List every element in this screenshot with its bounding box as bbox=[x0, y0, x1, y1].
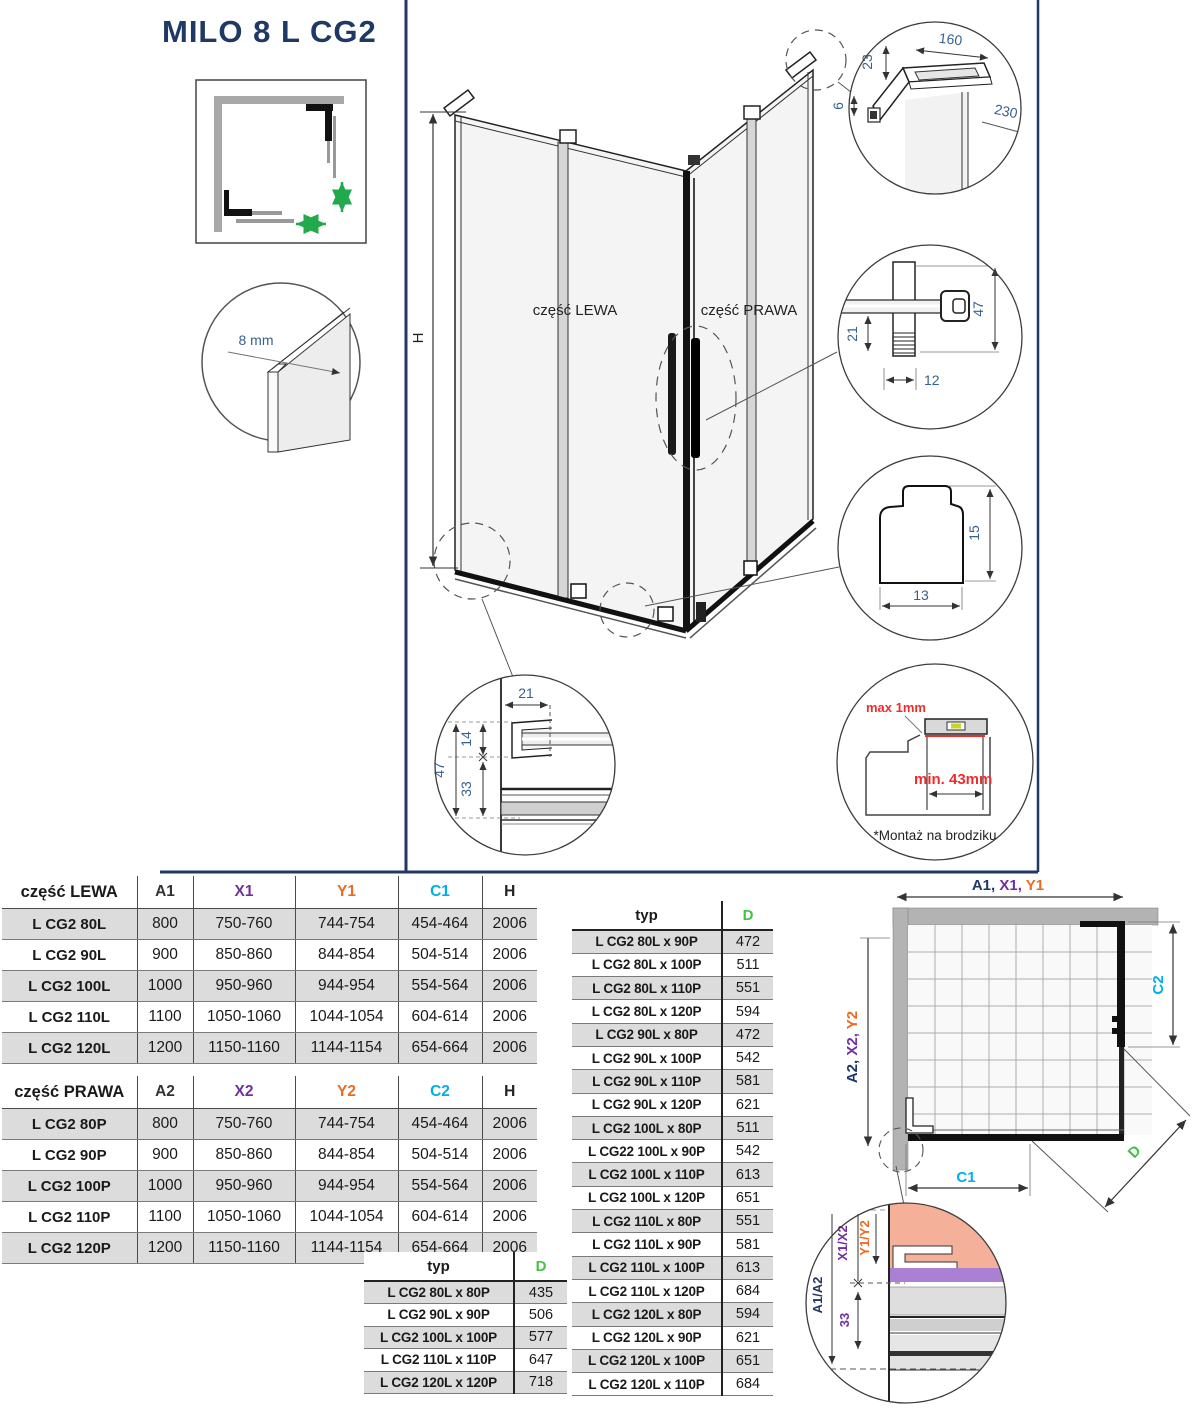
row-value: 750-760 bbox=[193, 1109, 295, 1140]
row-label: L CG2 120L x 110P bbox=[572, 1373, 722, 1396]
row-value: 621 bbox=[722, 1326, 773, 1349]
row-value: 1100 bbox=[137, 1202, 193, 1233]
table-typ-large: typ D L CG2 80L x 90P472L CG2 80L x 100P… bbox=[572, 901, 773, 1396]
table-row: L CG2 120L12001150-11601144-1154654-6642… bbox=[2, 1033, 537, 1064]
table-row: L CG2 110L x 110P647 bbox=[364, 1349, 567, 1372]
plan-c2-label: C2 bbox=[1150, 975, 1167, 994]
row-label: L CG2 100L x 80P bbox=[572, 1116, 722, 1139]
row-value: 1044-1054 bbox=[295, 1202, 398, 1233]
row-value: 684 bbox=[722, 1373, 773, 1396]
row-value: 604-614 bbox=[398, 1002, 482, 1033]
row-value: 1200 bbox=[137, 1033, 193, 1064]
dim-47b: 47 bbox=[431, 762, 447, 778]
col-h: H bbox=[482, 876, 537, 909]
row-label: L CG2 80L x 80P bbox=[364, 1281, 514, 1304]
row-value: 542 bbox=[722, 1140, 773, 1163]
row-value: 604-614 bbox=[398, 1202, 482, 1233]
detail-top-bracket: 23 160 6 230 bbox=[830, 22, 1034, 194]
row-label: L CG2 120P bbox=[2, 1233, 137, 1264]
corner-y-label: Y1/Y2 bbox=[857, 1220, 872, 1255]
row-label: L CG2 100L x 110P bbox=[572, 1163, 722, 1186]
row-label: L CG2 120L x 80P bbox=[572, 1303, 722, 1326]
row-value: 684 bbox=[722, 1279, 773, 1302]
table-row: L CG2 80L x 80P435 bbox=[364, 1281, 567, 1304]
table-row: L CG2 80L800750-760744-754454-4642006 bbox=[2, 909, 537, 940]
row-value: 511 bbox=[722, 953, 773, 976]
row-value: 651 bbox=[722, 1349, 773, 1372]
plan-c1-label: C1 bbox=[956, 1169, 975, 1186]
row-value: 900 bbox=[137, 940, 193, 971]
row-label: L CG2 80L bbox=[2, 909, 137, 940]
row-label: L CG2 90L x 90P bbox=[364, 1304, 514, 1327]
row-label: L CG2 110L x 110P bbox=[364, 1349, 514, 1372]
plan-top-dim-label: A1, X1, Y1 bbox=[972, 877, 1044, 894]
dim-13: 13 bbox=[913, 587, 929, 603]
row-value: 621 bbox=[722, 1093, 773, 1116]
table-row: L CG2 80L x 100P511 bbox=[572, 953, 773, 976]
table-title: część LEWA bbox=[2, 876, 137, 909]
row-value: 554-564 bbox=[398, 971, 482, 1002]
row-value: 472 bbox=[722, 1023, 773, 1046]
table-row: L CG2 120L x 90P621 bbox=[572, 1326, 773, 1349]
row-label: L CG2 90L x 110P bbox=[572, 1070, 722, 1093]
row-label: L CG2 110P bbox=[2, 1202, 137, 1233]
table-row: L CG2 110L x 90P581 bbox=[572, 1233, 773, 1256]
main-isometric-drawing: H część LEWA część PRAWA bbox=[410, 30, 856, 677]
col-d: D bbox=[722, 901, 773, 930]
table-row: L CG2 90L x 120P621 bbox=[572, 1093, 773, 1116]
row-value: 950-960 bbox=[193, 1171, 295, 1202]
col-a1: A1 bbox=[137, 876, 193, 909]
row-value: 850-860 bbox=[193, 940, 295, 971]
row-value: 613 bbox=[722, 1256, 773, 1279]
plan-d-label: D bbox=[1125, 1142, 1145, 1162]
row-value: 1050-1060 bbox=[193, 1202, 295, 1233]
row-label: L CG2 90L x 120P bbox=[572, 1093, 722, 1116]
row-value: 654-664 bbox=[398, 1033, 482, 1064]
col-c1: C1 bbox=[398, 876, 482, 909]
table-row: L CG2 120L x 110P684 bbox=[572, 1373, 773, 1396]
height-dim-label: H bbox=[410, 333, 427, 344]
table-row: L CG2 100L x 120P651 bbox=[572, 1186, 773, 1209]
row-value: 1100 bbox=[137, 1002, 193, 1033]
glass-thickness-label: 8 mm bbox=[239, 332, 274, 348]
table-row: L CG2 90P900850-860844-854504-5142006 bbox=[2, 1140, 537, 1171]
table-row: L CG2 90L x 80P472 bbox=[572, 1023, 773, 1046]
min-depth-label: min. 43mm bbox=[914, 771, 992, 788]
col-d: D bbox=[514, 1252, 567, 1281]
row-value: 2006 bbox=[482, 1033, 537, 1064]
col-y2: Y2 bbox=[295, 1076, 398, 1109]
row-value: 551 bbox=[722, 1210, 773, 1233]
row-label: L CG2 80L x 120P bbox=[572, 1000, 722, 1023]
table-typ-small: typ D L CG2 80L x 80P435L CG2 90L x 90P5… bbox=[364, 1252, 567, 1394]
door-handle bbox=[691, 338, 700, 458]
row-label: L CG2 100L x 120P bbox=[572, 1186, 722, 1209]
row-label: L CG2 90L x 100P bbox=[572, 1046, 722, 1069]
row-value: 1000 bbox=[137, 971, 193, 1002]
row-value: 2006 bbox=[482, 940, 537, 971]
row-value: 950-960 bbox=[193, 971, 295, 1002]
row-value: 1144-1154 bbox=[295, 1033, 398, 1064]
dim-21: 21 bbox=[844, 326, 860, 342]
glass-thickness-detail: 8 mm bbox=[202, 283, 360, 452]
detail-bottom-rail: 21 14 47 33 bbox=[431, 675, 615, 855]
row-value: 581 bbox=[722, 1233, 773, 1256]
row-label: L CG2 110L x 80P bbox=[572, 1210, 722, 1233]
door-handle bbox=[668, 333, 676, 455]
tray-mounting-note: *Montaż na brodziku bbox=[873, 828, 996, 843]
row-value: 581 bbox=[722, 1070, 773, 1093]
row-value: 554-564 bbox=[398, 1171, 482, 1202]
col-h: H bbox=[482, 1076, 537, 1109]
table-title: część PRAWA bbox=[2, 1076, 137, 1109]
table-row: L CG2 110L x 100P613 bbox=[572, 1256, 773, 1279]
installation-plan: A1, X1, Y1 A2, X2, Y2 C2 C1 D bbox=[844, 877, 1190, 1212]
row-value: 800 bbox=[137, 1109, 193, 1140]
left-part-label: część LEWA bbox=[533, 302, 617, 319]
table-header-row: część PRAWA A2 X2 Y2 C2 H bbox=[2, 1076, 537, 1109]
row-value: 435 bbox=[514, 1281, 567, 1304]
row-value: 2006 bbox=[482, 1171, 537, 1202]
table-row: L CG22 100L x 90P542 bbox=[572, 1140, 773, 1163]
row-label: L CG2 110L bbox=[2, 1002, 137, 1033]
row-value: 551 bbox=[722, 977, 773, 1000]
table-row: L CG2 80L x 120P594 bbox=[572, 1000, 773, 1023]
row-label: L CG2 100L x 100P bbox=[364, 1326, 514, 1349]
dim-21b: 21 bbox=[518, 685, 534, 701]
row-value: 511 bbox=[722, 1116, 773, 1139]
row-value: 2006 bbox=[482, 1140, 537, 1171]
table-row: L CG2 120L x 100P651 bbox=[572, 1349, 773, 1372]
detail-plan-corner: Y1/Y2 X1/X2 A1/A2 33 bbox=[806, 1203, 1019, 1403]
table-row: L CG2 100L x 80P511 bbox=[572, 1116, 773, 1139]
row-value: 744-754 bbox=[295, 909, 398, 940]
col-a2: A2 bbox=[137, 1076, 193, 1109]
corner-plan-schematic bbox=[196, 80, 366, 243]
row-value: 594 bbox=[722, 1000, 773, 1023]
row-label: L CG2 100L bbox=[2, 971, 137, 1002]
row-label: L CG2 120L x 100P bbox=[572, 1349, 722, 1372]
table-row: L CG2 80P800750-760744-754454-4642006 bbox=[2, 1109, 537, 1140]
row-value: 718 bbox=[514, 1371, 567, 1394]
table-row: L CG2 100L x 110P613 bbox=[572, 1163, 773, 1186]
table-czesc-prawa: część PRAWA A2 X2 Y2 C2 H L CG2 80P80075… bbox=[2, 1076, 537, 1264]
row-label: L CG2 110L x 90P bbox=[572, 1233, 722, 1256]
row-value: 454-464 bbox=[398, 909, 482, 940]
col-x2: X2 bbox=[193, 1076, 295, 1109]
row-value: 504-514 bbox=[398, 940, 482, 971]
page-title: MILO 8 L CG2 bbox=[162, 14, 377, 50]
row-label: L CG2 80L x 90P bbox=[572, 930, 722, 953]
row-value: 2006 bbox=[482, 971, 537, 1002]
col-typ: typ bbox=[364, 1252, 514, 1281]
row-value: 844-854 bbox=[295, 940, 398, 971]
dim-160: 160 bbox=[938, 30, 963, 49]
row-value: 472 bbox=[722, 930, 773, 953]
table-row: L CG2 90L x 100P542 bbox=[572, 1046, 773, 1069]
table-row: L CG2 80L x 90P472 bbox=[572, 930, 773, 953]
row-label: L CG2 120L x 90P bbox=[572, 1326, 722, 1349]
dim-12: 12 bbox=[924, 372, 940, 388]
dim-6: 6 bbox=[830, 102, 846, 110]
table-row: L CG2 90L900850-860844-854504-5142006 bbox=[2, 940, 537, 971]
row-value: 1200 bbox=[137, 1233, 193, 1264]
row-value: 594 bbox=[722, 1303, 773, 1326]
right-part-label: część PRAWA bbox=[701, 302, 797, 319]
row-label: L CG2 110L x 120P bbox=[572, 1279, 722, 1302]
row-value: 1000 bbox=[137, 1171, 193, 1202]
row-value: 542 bbox=[722, 1046, 773, 1069]
row-value: 944-954 bbox=[295, 971, 398, 1002]
row-value: 1050-1060 bbox=[193, 1002, 295, 1033]
dim-15: 15 bbox=[966, 525, 982, 541]
row-label: L CG2 80P bbox=[2, 1109, 137, 1140]
table-header-row: część LEWA A1 X1 Y1 C1 H bbox=[2, 876, 537, 909]
plan-left-dim-label: A2, X2, Y2 bbox=[844, 1011, 861, 1083]
corner-a-label: A1/A2 bbox=[810, 1277, 825, 1314]
detail-bottom-profile: 15 13 bbox=[838, 456, 1022, 640]
row-label: L CG2 90L x 80P bbox=[572, 1023, 722, 1046]
row-label: L CG2 90P bbox=[2, 1140, 137, 1171]
col-x1: X1 bbox=[193, 876, 295, 909]
col-typ: typ bbox=[572, 901, 722, 930]
table-row: L CG2 110P11001050-10601044-1054604-6142… bbox=[2, 1202, 537, 1233]
row-label: L CG2 80L x 110P bbox=[572, 977, 722, 1000]
dim-33b: 33 bbox=[458, 781, 474, 797]
corner-dim-33: 33 bbox=[837, 1313, 852, 1327]
table-row: L CG2 90L x 90P506 bbox=[364, 1304, 567, 1327]
detail-handle: 21 47 12 bbox=[836, 245, 1022, 429]
spec-sheet: 8 mm bbox=[0, 0, 1200, 1412]
row-value: 1044-1054 bbox=[295, 1002, 398, 1033]
row-value: 850-860 bbox=[193, 1140, 295, 1171]
row-value: 800 bbox=[137, 909, 193, 940]
row-label: L CG2 120L x 120P bbox=[364, 1371, 514, 1394]
table-row: L CG2 110L x 120P684 bbox=[572, 1279, 773, 1302]
table-row: L CG2 120L x 80P594 bbox=[572, 1303, 773, 1326]
detail-tray-mounting: max 1mm min. 43mm *Montaż na brodziku bbox=[837, 664, 1033, 860]
col-c2: C2 bbox=[398, 1076, 482, 1109]
row-value: 504-514 bbox=[398, 1140, 482, 1171]
row-value: 454-464 bbox=[398, 1109, 482, 1140]
row-value: 2006 bbox=[482, 1202, 537, 1233]
row-label: L CG2 110L x 100P bbox=[572, 1256, 722, 1279]
dim-14: 14 bbox=[458, 731, 474, 747]
row-value: 1150-1160 bbox=[193, 1033, 295, 1064]
table-row: L CG2 100P1000950-960944-954554-5642006 bbox=[2, 1171, 537, 1202]
row-label: L CG22 100L x 90P bbox=[572, 1140, 722, 1163]
table-row: L CG2 90L x 110P581 bbox=[572, 1070, 773, 1093]
table-row: L CG2 80L x 110P551 bbox=[572, 977, 773, 1000]
row-value: 944-954 bbox=[295, 1171, 398, 1202]
row-value: 1150-1160 bbox=[193, 1233, 295, 1264]
table-header-row: typ D bbox=[364, 1252, 567, 1281]
row-value: 506 bbox=[514, 1304, 567, 1327]
table-row: L CG2 110L11001050-10601044-1054604-6142… bbox=[2, 1002, 537, 1033]
dim-47: 47 bbox=[970, 301, 986, 317]
row-value: 647 bbox=[514, 1349, 567, 1372]
row-value: 744-754 bbox=[295, 1109, 398, 1140]
row-value: 900 bbox=[137, 1140, 193, 1171]
row-value: 2006 bbox=[482, 909, 537, 940]
row-value: 613 bbox=[722, 1163, 773, 1186]
row-value: 651 bbox=[722, 1186, 773, 1209]
table-row: L CG2 100L1000950-960944-954554-5642006 bbox=[2, 971, 537, 1002]
table-czesc-lewa: część LEWA A1 X1 Y1 C1 H L CG2 80L800750… bbox=[2, 876, 537, 1064]
max-gap-label: max 1mm bbox=[866, 700, 926, 715]
row-label: L CG2 90L bbox=[2, 940, 137, 971]
row-value: 577 bbox=[514, 1326, 567, 1349]
col-y1: Y1 bbox=[295, 876, 398, 909]
row-label: L CG2 100P bbox=[2, 1171, 137, 1202]
table-row: L CG2 110L x 80P551 bbox=[572, 1210, 773, 1233]
row-value: 844-854 bbox=[295, 1140, 398, 1171]
row-label: L CG2 80L x 100P bbox=[572, 953, 722, 976]
table-row: L CG2 120L x 120P718 bbox=[364, 1371, 567, 1394]
row-value: 2006 bbox=[482, 1109, 537, 1140]
row-label: L CG2 120L bbox=[2, 1033, 137, 1064]
row-value: 2006 bbox=[482, 1002, 537, 1033]
table-row: L CG2 100L x 100P577 bbox=[364, 1326, 567, 1349]
table-header-row: typ D bbox=[572, 901, 773, 930]
row-value: 750-760 bbox=[193, 909, 295, 940]
